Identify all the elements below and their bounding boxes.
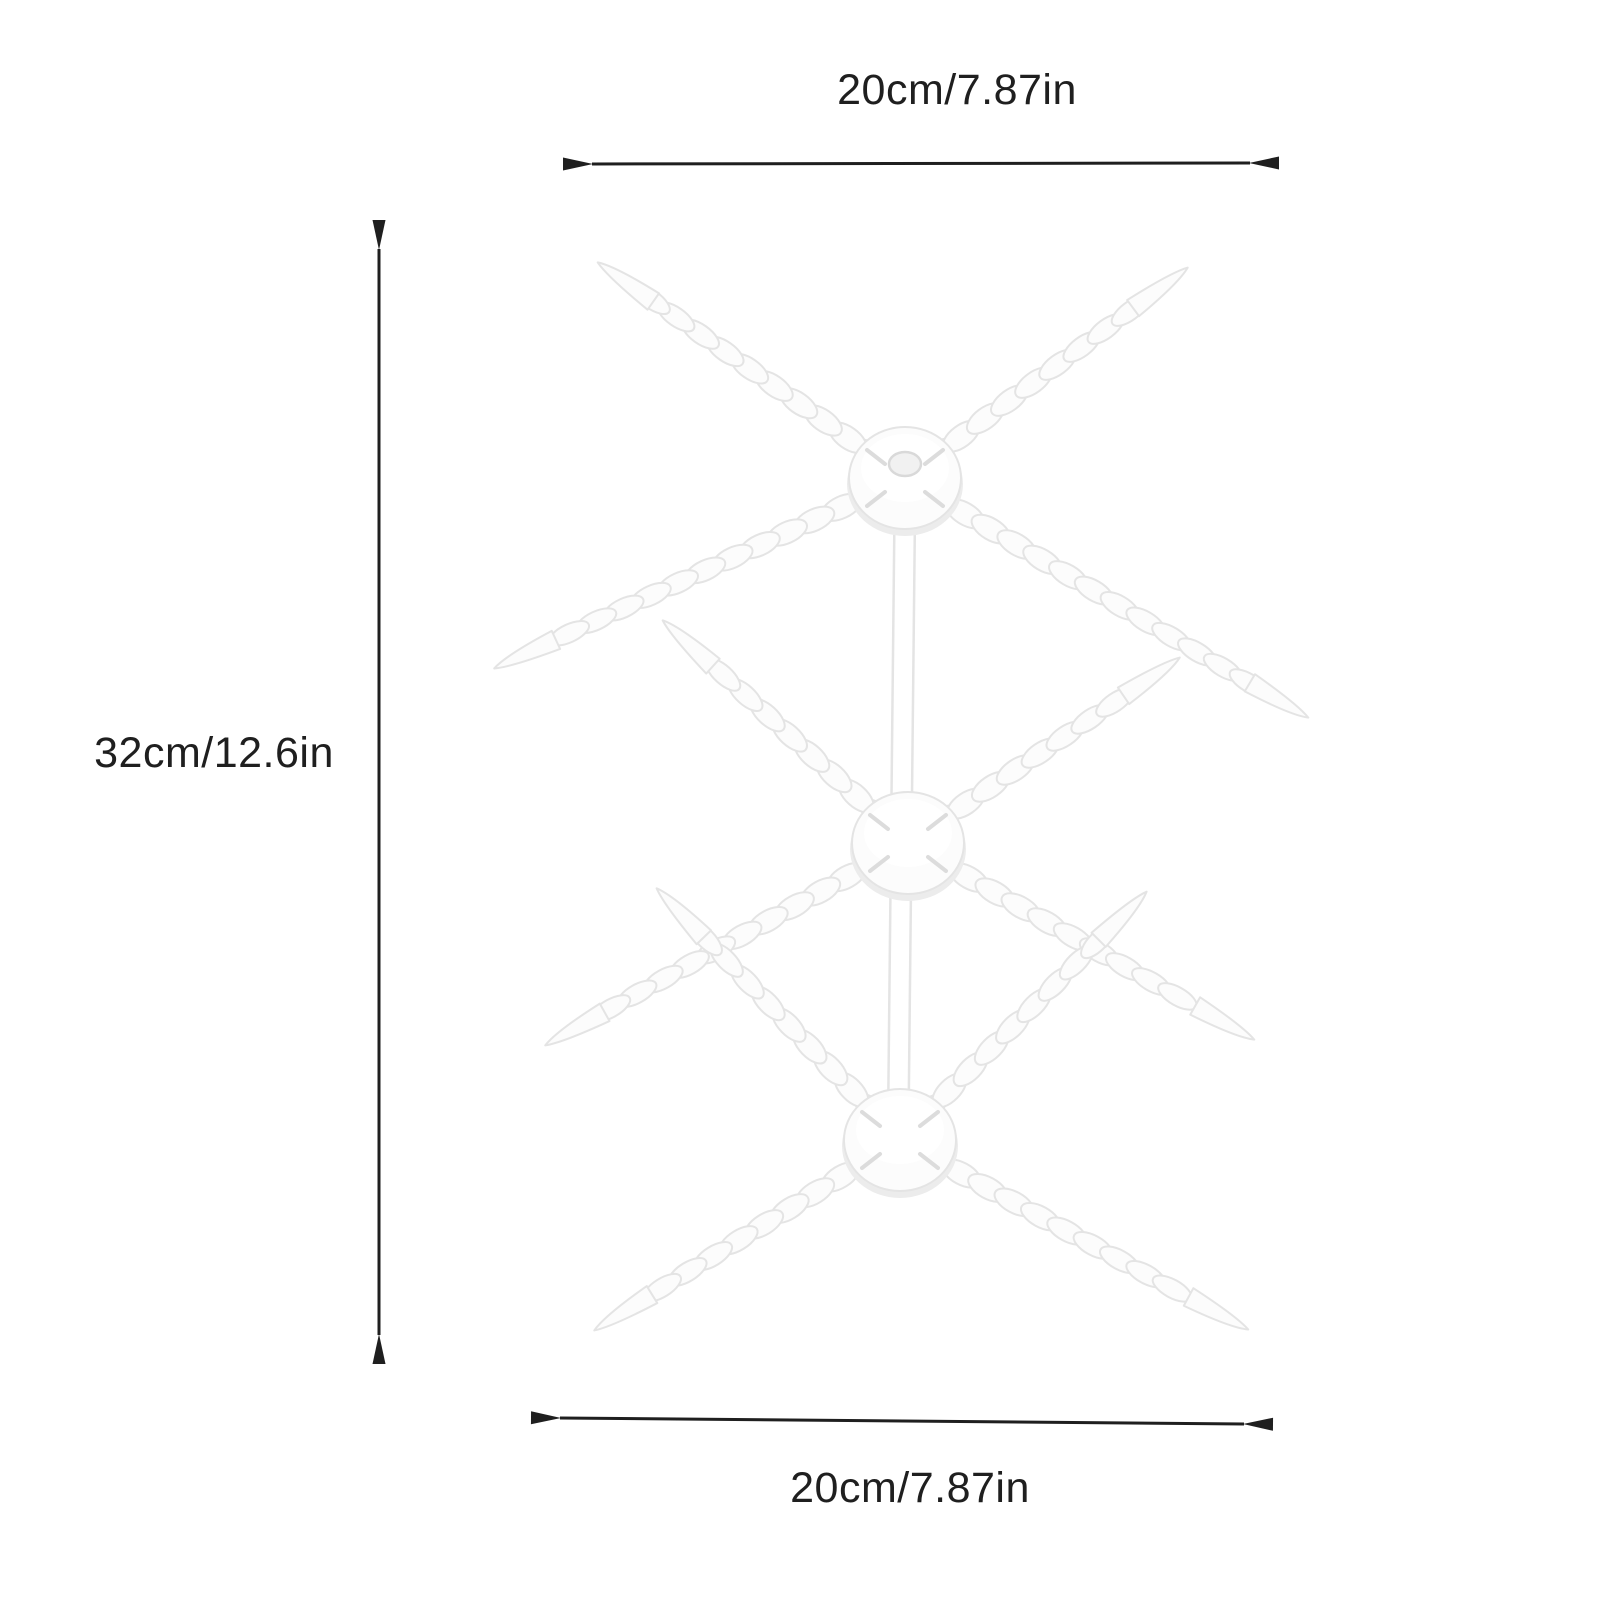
bottom-width-label: 20cm/7.87in: [790, 1464, 1030, 1512]
rack-hub: [850, 792, 966, 901]
arm-spear-tip: [649, 881, 711, 944]
arm-spear-tip: [490, 631, 560, 678]
arm-spear-tip: [1127, 260, 1194, 317]
top-width-label: 20cm/7.87in: [837, 66, 1077, 114]
arm-spear-tip: [589, 1286, 657, 1339]
product-dimension-page: 20cm/7.87in 32cm/12.6in 20cm/7.87in: [0, 0, 1601, 1601]
dimension-bottom: 20cm/7.87in: [560, 1418, 1244, 1512]
rack-arm: [915, 478, 1314, 728]
arm-spear-tip: [1190, 997, 1259, 1048]
rack-arm: [913, 259, 1194, 476]
product-dimension-diagram: 20cm/7.87in 32cm/12.6in 20cm/7.87in: [0, 0, 1601, 1601]
arm-spear-tip: [1245, 674, 1314, 726]
rack-arm: [656, 612, 902, 839]
rack-arm: [588, 1140, 890, 1339]
arm-spear-tip: [1184, 1288, 1253, 1338]
rack-arm: [592, 253, 897, 477]
product-illustration: [489, 253, 1313, 1340]
dimension-left: 32cm/12.6in: [94, 249, 379, 1335]
rack-arm: [917, 649, 1186, 842]
hub-pole-hole: [889, 452, 921, 476]
arm-spear-tip: [1092, 885, 1154, 947]
rack-arm: [911, 1139, 1254, 1340]
dimension-top: 20cm/7.87in: [592, 66, 1250, 164]
left-height-label: 32cm/12.6in: [94, 729, 334, 777]
rack-hub: [847, 427, 963, 536]
hub-highlight: [856, 1096, 944, 1164]
arm-spear-tip: [592, 254, 659, 309]
arm-spear-tip: [540, 1004, 609, 1055]
bottom-width-arrow: [560, 1418, 1244, 1424]
arm-spear-tip: [656, 613, 720, 674]
rack-hub: [842, 1089, 958, 1198]
arm-spear-tip: [1118, 649, 1185, 704]
top-width-arrow: [592, 163, 1250, 164]
hub-highlight: [864, 799, 952, 867]
